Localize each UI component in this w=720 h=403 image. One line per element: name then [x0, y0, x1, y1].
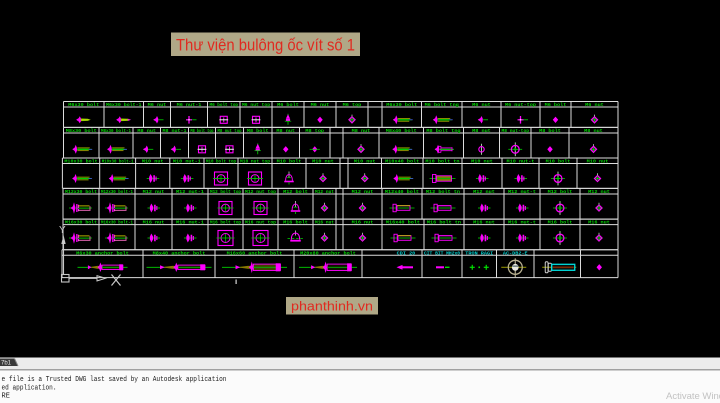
svg-text:M6 bolt: M6 bolt [277, 102, 299, 108]
svg-text:M6 bolt top: M6 bolt top [210, 102, 239, 108]
svg-text:M16 bolt: M16 bolt [283, 220, 308, 226]
svg-text:M20x80 anchor bolt: M20x80 anchor bolt [300, 250, 356, 256]
svg-text:M8x40 anchor bolt: M8x40 anchor bolt [153, 250, 206, 256]
svg-text:M8 nut top: M8 nut top [218, 128, 242, 134]
svg-text:AC-DB2-E: AC-DB2-E [503, 250, 528, 256]
svg-text:M8 bolt: M8 bolt [539, 128, 561, 134]
svg-text:TRON RAGI: TRON RAGI [465, 250, 493, 256]
svg-text:M12x40 bolt: M12x40 bolt [385, 189, 419, 195]
svg-text:M6 nut: M6 nut [472, 102, 491, 108]
svg-text:M6 nut-1: M6 nut-1 [177, 102, 202, 108]
svg-text:M16x30 bolt: M16x30 bolt [65, 220, 97, 226]
svg-text:M8 top: M8 top [305, 128, 324, 134]
svg-text:M10 bolt: M10 bolt [546, 159, 571, 165]
svg-text:M10 nut: M10 nut [471, 159, 493, 165]
svg-text:M16 nut top: M16 nut top [245, 220, 276, 226]
svg-text:M10 nut-1: M10 nut-1 [173, 159, 201, 165]
svg-text:e file is a Trusted DWG last s: e file is a Trusted DWG last saved by an… [2, 376, 227, 384]
svg-text:M16 nut-t: M16 nut-t [508, 220, 536, 226]
svg-text:M12 bolt: M12 bolt [548, 189, 573, 195]
svg-text:M6x30 bolt-1: M6x30 bolt-1 [106, 102, 142, 108]
svg-text:M8x30 bolt: M8x30 bolt [66, 128, 97, 134]
svg-text:M10 nut: M10 nut [354, 159, 376, 165]
svg-text:Y: Y [59, 225, 66, 236]
svg-text:M6 bolt: M6 bolt [545, 102, 567, 108]
svg-text:CIT BIT MH2x0: CIT BIT MH2x0 [424, 250, 460, 256]
svg-text:M16 bolt top: M16 bolt top [210, 220, 241, 226]
svg-text:ed application.: ed application. [2, 385, 57, 393]
svg-text:M16 nut: M16 nut [473, 220, 495, 226]
svg-text:RE: RE [2, 393, 10, 401]
svg-text:M12 nut: M12 nut [315, 189, 334, 195]
svg-text:M12 bolt: M12 bolt [283, 189, 308, 195]
svg-text:M6 bolt tng: M6 bolt tng [425, 102, 459, 108]
svg-text:M10x30 bolt: M10x30 bolt [64, 159, 97, 165]
svg-text:M8 nut: M8 nut [352, 128, 371, 134]
svg-text:M8x30 bolt-1: M8x30 bolt-1 [101, 128, 131, 134]
svg-text:M10 nut: M10 nut [587, 159, 609, 165]
svg-text:M16 nut: M16 nut [588, 220, 610, 226]
svg-text:M12x30 bolt: M12x30 bolt [65, 189, 97, 195]
svg-text:phanthinh.vn: phanthinh.vn [291, 299, 373, 314]
svg-text:M8x40 bolt: M8x40 bolt [386, 128, 417, 134]
svg-text:M10 nut: M10 nut [312, 159, 334, 165]
svg-text:M6 nut: M6 nut [148, 102, 167, 108]
svg-text:M10 bolt top: M10 bolt top [206, 159, 236, 165]
svg-text:M10x40 bolt: M10x40 bolt [385, 159, 419, 165]
svg-text:M12 nut-t: M12 nut-t [508, 189, 536, 195]
svg-text:M10 bolt: M10 bolt [277, 159, 302, 165]
svg-text:M16x30 bolt-1: M16x30 bolt-1 [101, 220, 133, 226]
svg-text:M8 nut: M8 nut [584, 128, 603, 134]
svg-text:M12 nut: M12 nut [143, 189, 165, 195]
svg-text:M10 bolt tn: M10 bolt tn [425, 159, 459, 165]
svg-text:M8 bolt top: M8 bolt top [191, 128, 214, 134]
svg-text:M12 nut: M12 nut [473, 189, 495, 195]
svg-text:M10 nut-t: M10 nut-t [507, 159, 535, 165]
svg-text:M16 nut: M16 nut [352, 220, 374, 226]
svg-text:M12x30 bolt-1: M12x30 bolt-1 [101, 189, 133, 195]
svg-text:M6 nut: M6 nut [311, 102, 330, 108]
svg-text:M12 nut: M12 nut [352, 189, 374, 195]
svg-text:M12 bolt top: M12 bolt top [210, 189, 241, 195]
svg-text:M6 top: M6 top [343, 102, 362, 108]
svg-text:M10x30 bolt-1: M10x30 bolt-1 [102, 159, 134, 165]
svg-text:M10 nut: M10 nut [142, 159, 164, 165]
svg-text:M16 bolt: M16 bolt [548, 220, 573, 226]
svg-text:M16 nut-1: M16 nut-1 [176, 220, 204, 226]
svg-text:M8 nut: M8 nut [472, 128, 491, 134]
svg-text:Activate Windo: Activate Windo [666, 391, 720, 402]
svg-text:M12 nut: M12 nut [588, 189, 610, 195]
svg-text:M6 nut top: M6 nut top [242, 102, 270, 108]
svg-text:M16 bolt tn: M16 bolt tn [427, 220, 461, 226]
svg-text:M12 nut-1: M12 nut-1 [176, 189, 204, 195]
svg-text:M8 nut: M8 nut [137, 128, 156, 134]
svg-text:M10 nut top: M10 nut top [240, 159, 270, 165]
svg-text:M8 nut-1: M8 nut-1 [163, 128, 187, 134]
svg-text:M16 nut: M16 nut [315, 220, 334, 226]
svg-text:M8 bolt tng: M8 bolt tng [426, 128, 460, 134]
svg-text:M6x30 bolt: M6x30 bolt [68, 102, 99, 108]
svg-text:M6x30 bolt: M6x30 bolt [386, 102, 417, 108]
svg-text:M6x30 anchor bolt: M6x30 anchor bolt [76, 250, 129, 256]
svg-text:M16 nut: M16 nut [143, 220, 165, 226]
svg-text:M16x40 bolt: M16x40 bolt [386, 220, 420, 226]
svg-text:CDI 20: CDI 20 [397, 250, 416, 256]
svg-text:M6 nut: M6 nut [585, 102, 604, 108]
svg-text:M16x60 anchor bolt: M16x60 anchor bolt [227, 250, 283, 256]
svg-text:M6 nut-top: M6 nut-top [505, 102, 536, 108]
svg-text:Thư viện bulông ốc vít số 1: Thư viện bulông ốc vít số 1 [176, 36, 355, 55]
svg-text:7b1: 7b1 [1, 361, 12, 367]
svg-text:M8 nut: M8 nut [276, 128, 295, 134]
svg-text:M12 nut top: M12 nut top [245, 189, 276, 195]
svg-text:M8 bolt: M8 bolt [247, 128, 269, 134]
svg-text:M8 nut-top: M8 nut-top [502, 128, 530, 134]
svg-text:M12 bolt tn: M12 bolt tn [426, 189, 460, 195]
